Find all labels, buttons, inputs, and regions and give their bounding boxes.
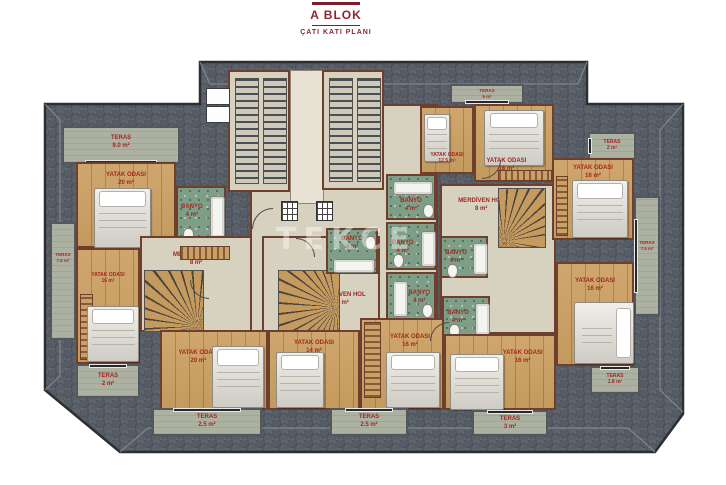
window-grid: [281, 201, 298, 221]
room-label: TERAS7.5 m²: [636, 240, 658, 251]
stair-flight: [329, 78, 353, 182]
terrace-b1: TERAS2.5 m²: [152, 408, 262, 436]
room-label: TERAS9.0 m²: [64, 135, 178, 150]
bed: [212, 346, 264, 408]
terrace-bottom-right: TERAS1.8 m²: [590, 366, 640, 394]
bathtub: [393, 281, 408, 317]
stairwell-right: [322, 70, 384, 190]
terrace-top-center: TERAS5 m²: [450, 84, 524, 104]
bed: [276, 352, 324, 408]
room-label: TERAS1.8 m²: [592, 373, 638, 386]
wardrobe: [556, 176, 568, 236]
shaft-box: [206, 88, 230, 105]
bedroom-top-center: YATAK ODASI12.5 m²: [420, 106, 474, 174]
winder-stair: [278, 270, 340, 332]
bedroom-right-1: YATAK ODASI16 m²: [552, 158, 634, 240]
bathroom-right-2: BANYO4 m²: [442, 296, 490, 338]
shaft-box: [206, 106, 230, 123]
wardrobe: [364, 322, 381, 398]
stair-flight: [263, 78, 287, 184]
bathroom-right-1: BANYO4 m²: [440, 236, 488, 278]
bedroom-mid-left: YATAK ODASI16 m²: [76, 248, 140, 364]
bathtub: [473, 243, 488, 275]
room-label: TERAS3 m²: [474, 416, 546, 431]
floor-plan-canvas: A BLOK ÇATI KATI PLANI MERDİVEN HOL8 m²: [0, 0, 726, 485]
bathtub: [210, 196, 225, 238]
room-label: YATAK ODASI16 m²: [558, 278, 632, 293]
bathroom-center-4: BANYO4 m²: [386, 272, 436, 320]
bedroom-bottom-1: YATAK ODASI20 m²: [160, 330, 268, 410]
bathtub: [333, 259, 375, 273]
bathtub: [393, 181, 433, 195]
terrace-b2: TERAS2.5 m²: [330, 408, 408, 436]
bathroom-center-1: BANYO4 m²: [386, 174, 436, 220]
bedroom-bottom-4: YATAK ODASI16 m²: [444, 334, 556, 410]
bed: [386, 352, 440, 408]
room-label: TERAS7.5 m²: [52, 252, 74, 263]
room-label: TERAS2 m²: [78, 373, 138, 388]
window-grid: [316, 201, 333, 221]
room-label: BANYO4 m²: [178, 204, 206, 219]
bed: [87, 306, 139, 362]
wardrobe: [498, 170, 552, 181]
bedroom-bottom-2: YATAK ODASI14 m²: [268, 330, 360, 410]
terrace-left: TERAS7.5 m²: [50, 222, 76, 340]
winder-stair: [498, 188, 546, 248]
terrace-top-left: TERAS9.0 m²: [62, 126, 180, 164]
room-label: TERAS5 m²: [452, 88, 522, 99]
stair-flight: [235, 78, 259, 184]
bathtub: [475, 303, 490, 335]
terrace-top-right: TERAS2 m²: [588, 132, 636, 160]
toilet: [423, 204, 434, 218]
bed: [574, 302, 634, 364]
terrace-right: TERAS7.5 m²: [634, 196, 660, 316]
toilet: [422, 304, 433, 318]
stair-corridor: [290, 70, 324, 204]
room-label: YATAK ODASI16 m²: [78, 272, 138, 285]
room-label: BANYO4 m²: [442, 250, 470, 265]
bathtub: [421, 231, 436, 267]
room-label: TERAS2.5 m²: [332, 414, 406, 429]
room-label: TERAS2 m²: [590, 139, 634, 152]
room-label: BANYO4 m²: [405, 290, 434, 305]
bed: [572, 180, 628, 238]
terrace-bottom-left: TERAS2 m²: [76, 364, 140, 398]
stairwell-left: [228, 70, 290, 192]
terrace-b3: TERAS3 m²: [472, 410, 548, 436]
wardrobe: [180, 246, 230, 260]
room-label: TERAS2.5 m²: [154, 414, 260, 429]
watermark: TEKCE: [276, 222, 416, 257]
toilet: [447, 264, 458, 278]
room-label: YATAK ODASI20 m²: [78, 172, 174, 187]
bed: [484, 110, 544, 166]
bed: [450, 354, 504, 410]
stair-flight: [357, 78, 381, 182]
bed: [424, 114, 450, 162]
bedroom-right-2: YATAK ODASI16 m²: [556, 262, 634, 366]
